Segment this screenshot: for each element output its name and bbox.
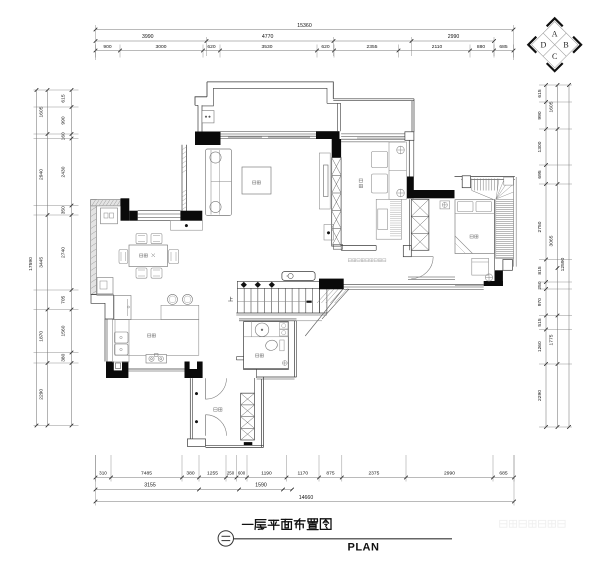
svg-text:250: 250 (537, 281, 543, 289)
svg-text:D: D (541, 41, 547, 50)
svg-text:1605: 1605 (549, 101, 555, 112)
svg-text:615: 615 (537, 89, 543, 97)
svg-text:990: 990 (537, 111, 543, 119)
svg-text:2355: 2355 (367, 44, 378, 50)
svg-text:7485: 7485 (141, 471, 152, 477)
svg-text:970: 970 (537, 298, 543, 306)
svg-text:3155: 3155 (144, 483, 156, 489)
svg-text:1605: 1605 (39, 106, 45, 117)
svg-text:815: 815 (537, 266, 543, 274)
svg-text:310: 310 (99, 471, 107, 476)
svg-text:1590: 1590 (255, 483, 267, 489)
svg-text:880: 880 (477, 44, 485, 50)
svg-text:3445: 3445 (39, 257, 45, 268)
svg-text:3000: 3000 (156, 44, 167, 50)
svg-text:350: 350 (61, 206, 67, 214)
svg-text:900: 900 (103, 44, 111, 50)
svg-text:380: 380 (61, 353, 67, 361)
svg-text:2740: 2740 (61, 247, 67, 258)
svg-text:705: 705 (61, 295, 67, 303)
svg-text:160: 160 (61, 132, 67, 140)
svg-text:1775: 1775 (549, 334, 555, 345)
svg-text:1870: 1870 (39, 331, 45, 342)
svg-text:2940: 2940 (39, 169, 45, 180)
svg-text:2290: 2290 (39, 389, 45, 400)
svg-text:1190: 1190 (261, 471, 272, 477)
svg-text:685: 685 (499, 471, 507, 477)
svg-text:2990: 2990 (448, 34, 460, 40)
svg-text:600: 600 (238, 471, 246, 476)
svg-text:3990: 3990 (142, 34, 154, 40)
svg-text:2375: 2375 (368, 471, 379, 477)
svg-text:615: 615 (61, 94, 67, 102)
svg-text:1560: 1560 (61, 325, 67, 336)
svg-text:620: 620 (207, 44, 215, 50)
svg-text:C: C (552, 52, 557, 61)
svg-text:17590: 17590 (28, 257, 34, 271)
svg-text:2290: 2290 (537, 390, 543, 401)
svg-text:B: B (563, 41, 568, 50)
svg-text:685: 685 (499, 44, 507, 50)
svg-text:2990: 2990 (444, 471, 455, 477)
svg-text:620: 620 (321, 44, 329, 50)
svg-text:4770: 4770 (262, 34, 274, 40)
svg-text:250: 250 (227, 471, 235, 476)
svg-text:2110: 2110 (432, 44, 443, 50)
svg-text:990: 990 (61, 116, 67, 124)
svg-text:PLAN: PLAN (348, 542, 380, 554)
svg-text:3065: 3065 (549, 235, 555, 246)
svg-text:2430: 2430 (61, 166, 67, 177)
svg-text:1170: 1170 (298, 471, 309, 477)
svg-text:1255: 1255 (207, 471, 218, 477)
svg-text:875: 875 (326, 471, 334, 477)
svg-text:380: 380 (186, 471, 194, 477)
svg-text:1260: 1260 (537, 341, 543, 352)
svg-text:2750: 2750 (537, 221, 543, 232)
svg-text:695: 695 (537, 170, 543, 178)
svg-text:3530: 3530 (262, 44, 273, 50)
svg-text:A: A (552, 30, 558, 39)
svg-text:15360: 15360 (297, 23, 312, 29)
svg-text:14660: 14660 (299, 495, 314, 501)
svg-text:1300: 1300 (537, 141, 543, 152)
svg-text:515: 515 (537, 318, 543, 326)
